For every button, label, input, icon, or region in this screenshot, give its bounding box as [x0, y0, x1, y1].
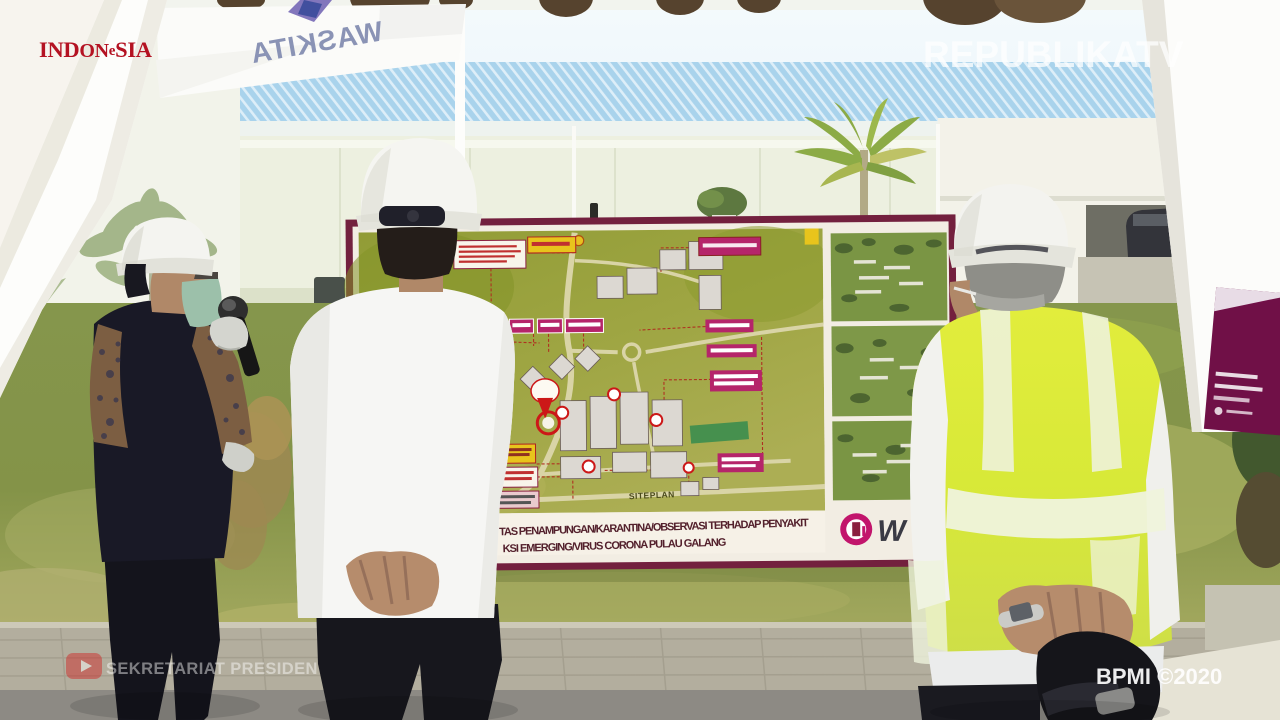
svg-text:SITEPLAN: SITEPLAN: [629, 489, 675, 501]
svg-text:INDONeSIA: INDONeSIA: [39, 37, 153, 62]
svg-text:SEKRETARIAT PRESIDEN: SEKRETARIAT PRESIDEN: [106, 660, 318, 678]
svg-text:BPMI ©2020: BPMI ©2020: [1096, 664, 1222, 689]
svg-text:REPUBLIKATV: REPUBLIKATV: [923, 34, 1184, 75]
svg-text:W: W: [877, 515, 908, 548]
